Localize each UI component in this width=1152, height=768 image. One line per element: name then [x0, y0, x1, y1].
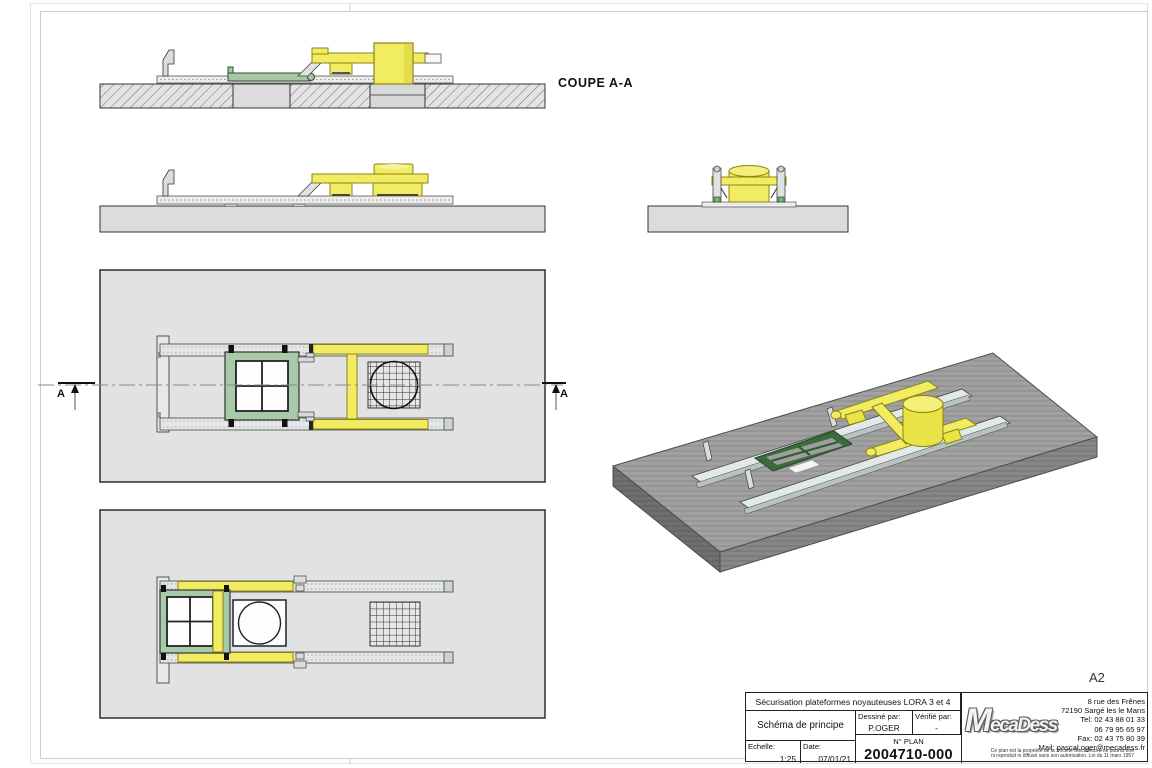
cad-drawing-canvas	[0, 0, 1152, 768]
scale-value: 1:25	[748, 754, 798, 764]
section-view-coupe-aa	[100, 43, 545, 108]
plan-number-cell: N° PLAN 2004710-000	[856, 735, 961, 763]
legal-line-2: ni reproduit ni diffusé sans son autoris…	[980, 754, 1145, 760]
phone-line-2: 06 79 95 65 97	[1039, 725, 1145, 734]
address-line-2: 72190 Sargé les le Mans	[1039, 706, 1145, 715]
hole-box-with-circle	[233, 600, 286, 646]
checked-by-cell: Vérifié par: -	[913, 711, 961, 735]
sheet-format-label: A2	[1089, 670, 1105, 685]
company-block: MecaDess 8 rue des Frênes 72190 Sargé le…	[961, 693, 1149, 763]
vent-grid	[370, 602, 420, 646]
address-line-1: 8 rue des Frênes	[1039, 697, 1145, 706]
section-marker-letter-right: A	[560, 388, 568, 400]
project-title: Sécurisation plateformes noyauteuses LOR…	[746, 693, 961, 711]
drawn-by-value: P.OGER	[858, 723, 910, 733]
date-value: 07/01/21	[803, 754, 853, 764]
top-plan-view-extended	[38, 270, 563, 482]
title-block: Sécurisation plateformes noyauteuses LOR…	[745, 692, 1148, 762]
drawing-sheet: COUPE A-A A A A2 Sécurisation plateforme…	[0, 0, 1152, 768]
plan-number-value: 2004710-000	[856, 747, 961, 763]
top-plan-view-retracted	[100, 510, 545, 718]
isometric-view	[613, 353, 1097, 572]
company-logo: MecaDess	[965, 702, 1043, 739]
section-marker-letter-left: A	[57, 388, 65, 400]
drawn-by-cell: Dessiné par: P.OGER	[856, 711, 913, 735]
phone-line-1: Tel: 02 43 88 01 33	[1039, 715, 1145, 724]
plan-number-label: N° PLAN	[856, 737, 961, 746]
checked-by-value: -	[915, 723, 958, 733]
date-label: Date:	[803, 742, 853, 751]
company-address: 8 rue des Frênes 72190 Sargé les le Mans…	[1039, 697, 1145, 752]
drawing-title: Schéma de principe	[746, 711, 856, 741]
drawn-by-label: Dessiné par:	[858, 712, 910, 721]
checked-by-label: Vérifié par:	[915, 712, 958, 721]
scale-cell: Echelle: 1:25	[746, 741, 801, 763]
fax-line: Fax: 02 43 75 80 39	[1039, 734, 1145, 743]
scale-label: Echelle:	[748, 742, 798, 751]
end-elevation-view	[648, 166, 848, 233]
date-cell: Date: 07/01/21	[801, 741, 856, 763]
front-elevation-view	[100, 164, 545, 232]
legal-notice: Ce plan est la propriété de la Société M…	[980, 749, 1145, 760]
section-title-label: COUPE A-A	[558, 76, 633, 90]
